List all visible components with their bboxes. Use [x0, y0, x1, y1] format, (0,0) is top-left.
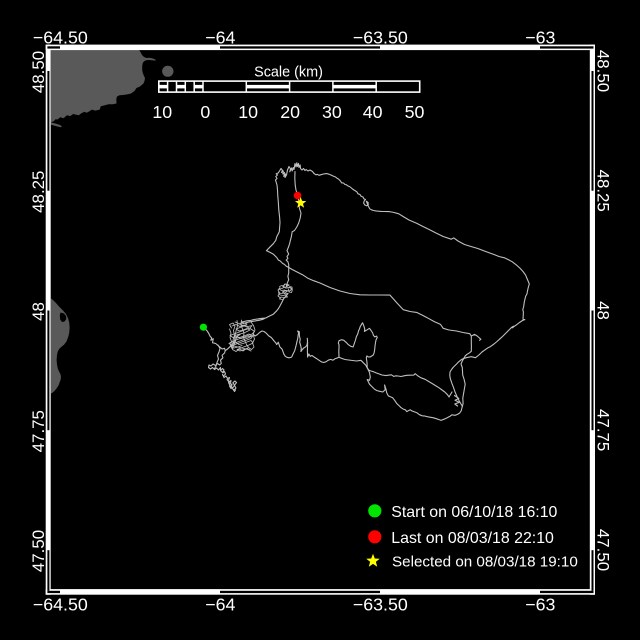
svg-text:48.25: 48.25	[29, 171, 48, 213]
svg-text:−63.50: −63.50	[353, 594, 408, 614]
svg-text:47.75: 47.75	[593, 409, 612, 451]
svg-text:40: 40	[363, 102, 383, 122]
svg-text:20: 20	[280, 102, 300, 122]
svg-text:48.50: 48.50	[593, 50, 612, 92]
svg-text:−64.50: −64.50	[33, 27, 88, 47]
svg-text:48: 48	[29, 302, 48, 321]
svg-text:48.25: 48.25	[593, 170, 612, 212]
svg-text:48.50: 48.50	[29, 51, 48, 93]
svg-text:−63: −63	[525, 594, 555, 614]
svg-text:Scale (km): Scale (km)	[254, 65, 323, 81]
svg-text:−64: −64	[205, 594, 235, 614]
svg-text:−64.50: −64.50	[33, 594, 88, 614]
svg-text:10: 10	[238, 102, 258, 122]
svg-text:10: 10	[152, 102, 172, 122]
svg-text:Selected on 08/03/18 19:10: Selected on 08/03/18 19:10	[392, 553, 578, 570]
svg-text:−63.50: −63.50	[353, 27, 408, 47]
svg-text:47.50: 47.50	[593, 529, 612, 571]
svg-text:47.50: 47.50	[29, 530, 48, 572]
svg-text:0: 0	[200, 102, 210, 122]
svg-text:50: 50	[405, 102, 425, 122]
svg-text:Last on 08/03/18 22:10: Last on 08/03/18 22:10	[391, 530, 554, 547]
svg-text:48: 48	[593, 301, 612, 320]
svg-text:Start on 06/10/18 16:10: Start on 06/10/18 16:10	[391, 504, 557, 521]
svg-text:30: 30	[322, 102, 342, 122]
svg-text:47.75: 47.75	[29, 410, 48, 452]
svg-text:−63: −63	[525, 27, 555, 47]
svg-text:−64: −64	[205, 27, 235, 47]
